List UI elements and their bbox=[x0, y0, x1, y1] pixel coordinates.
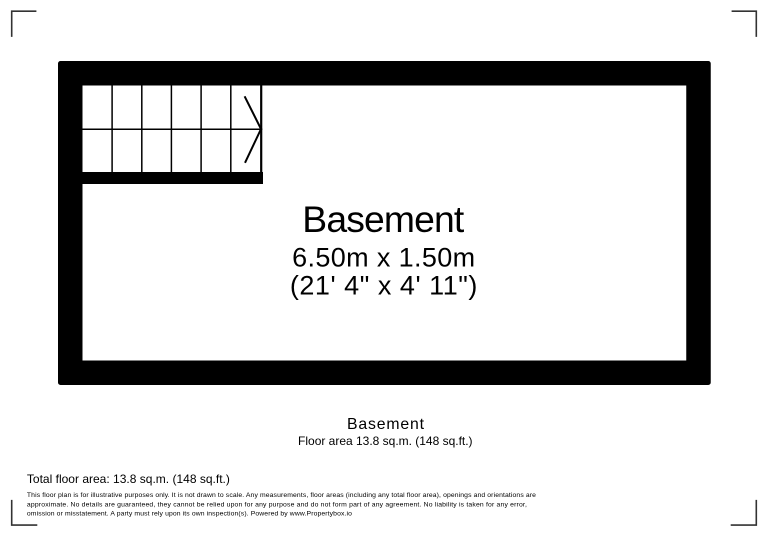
svg-text:omission or misstatement. A pa: omission or misstatement. A party must r… bbox=[27, 511, 352, 518]
svg-text:(21' 4" x 4' 11"): (21' 4" x 4' 11") bbox=[290, 270, 477, 300]
svg-text:Basement: Basement bbox=[347, 416, 425, 433]
svg-text:6.50m x 1.50m: 6.50m x 1.50m bbox=[292, 242, 475, 272]
svg-text:approximate. No details are gu: approximate. No details are guaranteed, … bbox=[27, 501, 527, 508]
svg-text:Basement: Basement bbox=[302, 198, 465, 240]
svg-text:This floor plan is for illustr: This floor plan is for illustrative purp… bbox=[27, 492, 536, 499]
svg-text:Floor area 13.8 sq.m. (148 sq.: Floor area 13.8 sq.m. (148 sq.ft.) bbox=[298, 434, 473, 448]
svg-text:Total floor area: 13.8 sq.m. (: Total floor area: 13.8 sq.m. (148 sq.ft.… bbox=[27, 472, 230, 486]
